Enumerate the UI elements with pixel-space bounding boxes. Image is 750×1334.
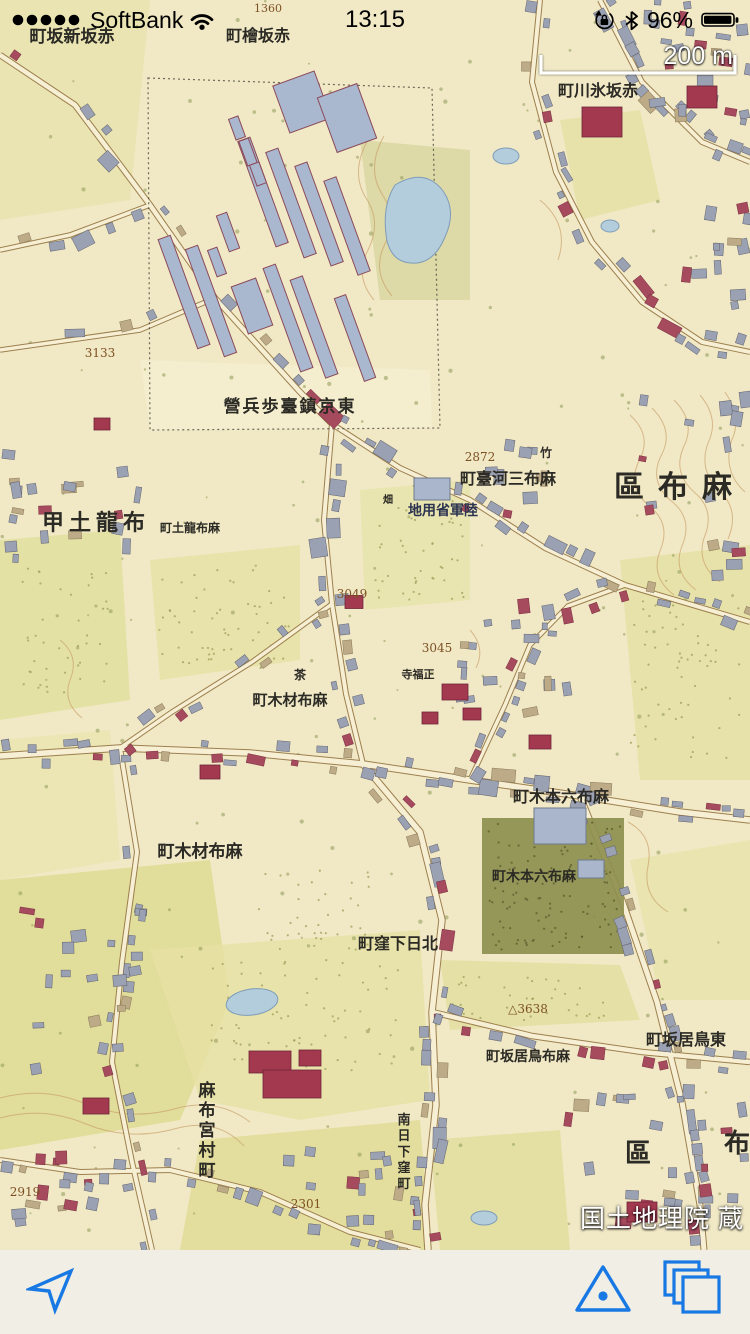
orientation-lock-icon <box>593 9 616 32</box>
battery-percent-label: 96% <box>647 7 693 34</box>
bottom-toolbar <box>0 1250 750 1334</box>
map-label: 3045 <box>422 641 453 655</box>
map-label: 2872 <box>465 450 496 464</box>
historical-map-image[interactable]: 町坂新坂赤1360町檜坂赤町川氷坂赤3133營兵歩臺鎮京東2872町臺河三布麻區… <box>0 0 750 1250</box>
scale-bar-label: 200 m <box>664 42 733 71</box>
map-label: 寺福正 <box>402 667 435 681</box>
map-label: △3638 <box>508 1002 548 1016</box>
layers-icon <box>656 1258 728 1318</box>
map-label: 町木材布麻 <box>252 691 328 709</box>
map-attribution: 国土地理院 蔵 <box>580 1199 744 1235</box>
map-label: 町木材布麻 <box>158 841 244 862</box>
map-label: 2919 <box>10 1185 41 1199</box>
map-label: 營兵歩臺鎮京東 <box>224 396 357 417</box>
map-label: 南日下窪町 <box>397 1112 410 1192</box>
map-label: 畑 <box>383 493 393 506</box>
battery-icon <box>701 12 740 28</box>
map-label: 竹 <box>539 445 552 460</box>
triangulation-point-icon <box>573 1263 633 1315</box>
scale-bar: 200 m <box>539 48 737 76</box>
layers-button[interactable] <box>656 1258 728 1320</box>
locate-me-button[interactable] <box>24 1264 80 1320</box>
map-label: 町木本六布麻 <box>492 868 577 885</box>
location-arrow-icon <box>26 1266 78 1316</box>
map-label: 町川氷坂赤 <box>558 81 638 100</box>
map-label: 町坂居鳥布麻 <box>486 1048 571 1065</box>
map-canvas[interactable]: 町坂新坂赤1360町檜坂赤町川氷坂赤3133營兵歩臺鎮京東2872町臺河三布麻區… <box>0 0 750 1250</box>
map-label: 茶 <box>293 667 307 682</box>
map-label: 3049 <box>337 587 368 601</box>
map-label: 區 <box>625 1139 651 1169</box>
map-label: 甲土龍布 <box>42 510 150 536</box>
map-label: 町坂居鳥東 <box>646 1030 726 1049</box>
triangulation-point-button[interactable] <box>572 1262 634 1318</box>
map-label: 町木本六布麻 <box>513 787 610 806</box>
bluetooth-icon <box>624 10 639 31</box>
map-label: 布 <box>724 1129 750 1159</box>
map-label: 麻布宮村町 <box>198 1080 217 1181</box>
map-label: 町窪下日北 <box>358 934 438 953</box>
map-label: 3133 <box>85 346 116 360</box>
map-label: 町臺河三布麻 <box>460 469 557 488</box>
phone-screen: 町坂新坂赤1360町檜坂赤町川氷坂赤3133營兵歩臺鎮京東2872町臺河三布麻區… <box>0 0 750 1334</box>
map-label: 2301 <box>291 1197 322 1211</box>
map-label: 町土龍布麻 <box>160 520 221 535</box>
map-label: 地用省軍陸 <box>408 502 478 519</box>
status-bar: SoftBank 13:15 96% <box>0 0 750 40</box>
map-label: 區布麻 <box>614 470 746 505</box>
